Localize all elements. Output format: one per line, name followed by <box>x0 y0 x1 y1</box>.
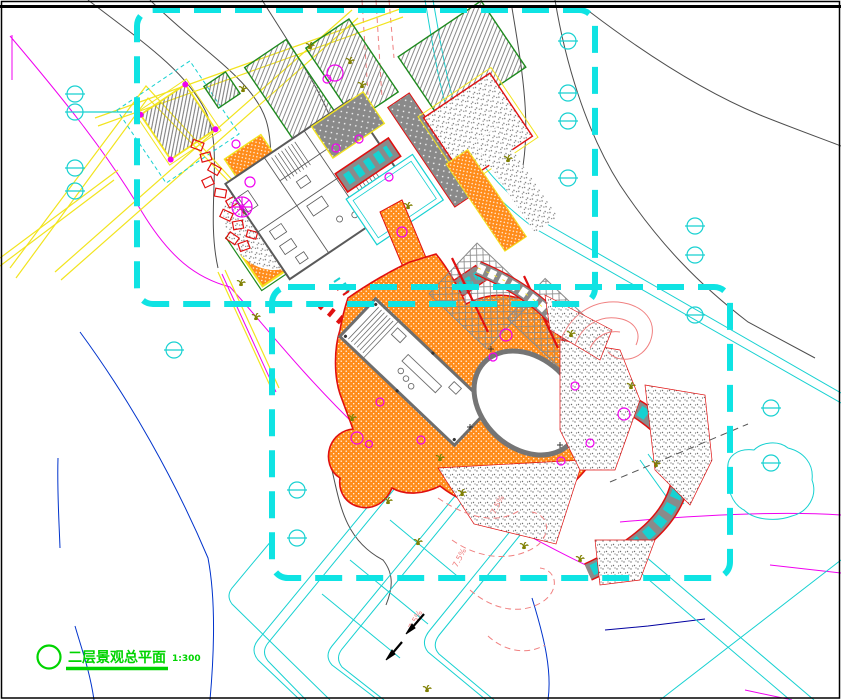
drawing-title: 二层景观总平面 <box>68 649 166 666</box>
site-plan-drawing: 7.5% 7.5% 7.5% 二层景观总平面 1:300 <box>0 0 841 700</box>
flower-symbol <box>232 197 252 217</box>
cad-site-plan-sheet: 7.5% 7.5% 7.5% 二层景观总平面 1:300 <box>0 0 841 700</box>
drawing-scale: 1:300 <box>172 654 201 664</box>
